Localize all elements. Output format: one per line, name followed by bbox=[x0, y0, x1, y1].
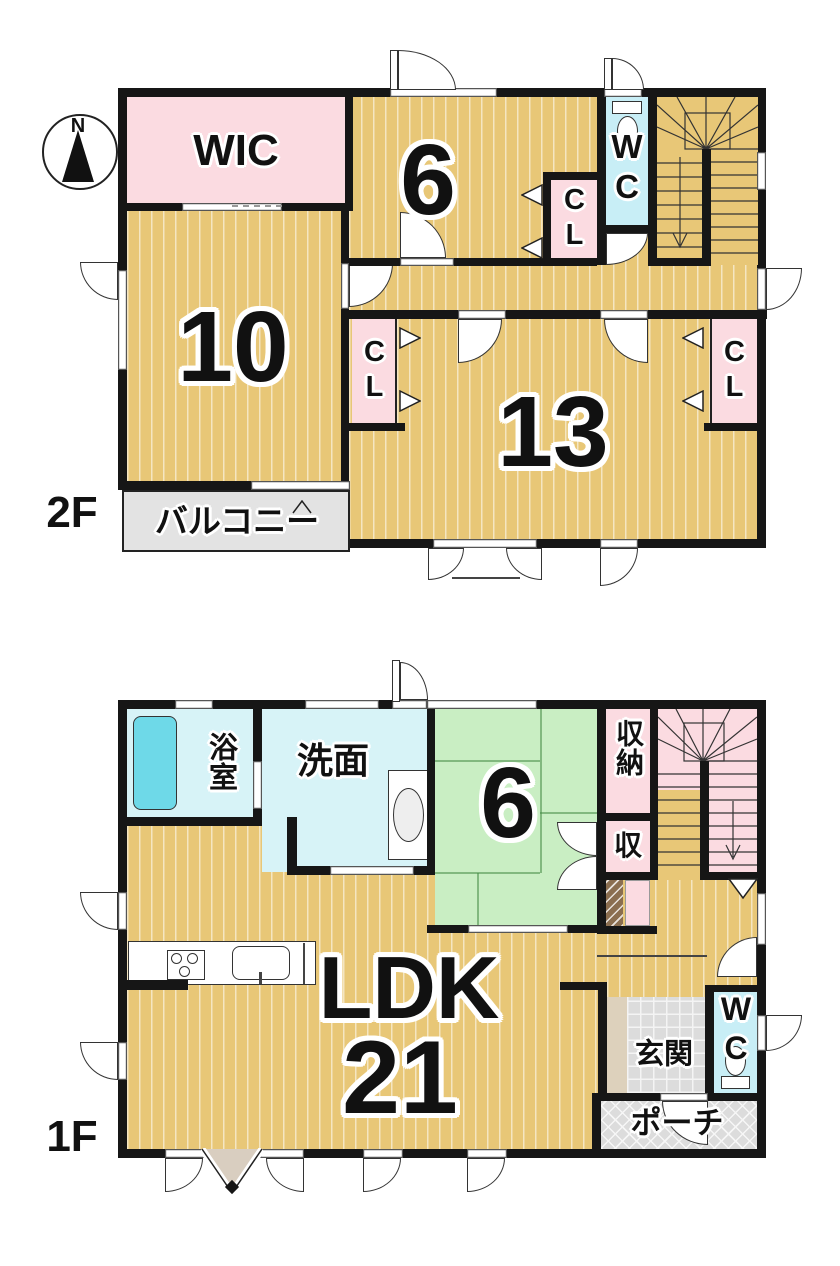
wall bbox=[597, 926, 657, 934]
stove-burner-icon bbox=[187, 953, 198, 964]
room-6-2f-label: 6 bbox=[400, 130, 456, 230]
north-arrow-icon bbox=[62, 130, 94, 182]
window bbox=[305, 700, 379, 709]
room-tatami-6-label: 6 bbox=[480, 753, 536, 853]
wall bbox=[341, 423, 405, 431]
door-arc bbox=[398, 50, 456, 90]
balcony-label: バルコニー bbox=[155, 505, 319, 538]
wall bbox=[543, 172, 551, 262]
wall bbox=[592, 1093, 601, 1157]
sink-bowl-icon bbox=[393, 788, 424, 842]
sliding-door bbox=[251, 481, 350, 490]
window bbox=[757, 152, 766, 190]
wall bbox=[648, 97, 657, 265]
folding-door-icon bbox=[521, 237, 543, 259]
door-arc bbox=[80, 1042, 118, 1080]
room-13-label: 13 bbox=[497, 382, 608, 482]
window bbox=[260, 1149, 304, 1158]
door-arc bbox=[266, 1158, 304, 1192]
storage-strip bbox=[625, 880, 650, 926]
window bbox=[757, 893, 766, 945]
sliding-door bbox=[468, 925, 568, 933]
stove-burner-icon bbox=[171, 953, 182, 964]
storage-shu-label: 収 bbox=[614, 832, 642, 860]
floor-plan: N bbox=[0, 0, 840, 1266]
door-arc bbox=[467, 1158, 505, 1192]
window bbox=[467, 1149, 507, 1158]
door-arc bbox=[165, 1158, 203, 1192]
tatami-line bbox=[540, 812, 597, 814]
wall bbox=[341, 310, 767, 319]
room-wc-1f-label: WC bbox=[720, 991, 752, 1069]
staircase-1f bbox=[658, 709, 757, 880]
wall bbox=[543, 172, 597, 180]
entrance-step bbox=[607, 997, 627, 1093]
closet-front-line bbox=[395, 319, 397, 423]
window bbox=[165, 1149, 205, 1158]
stair-base-notch bbox=[728, 878, 758, 900]
entrance-step-line bbox=[597, 955, 707, 957]
bathtub-icon bbox=[133, 716, 177, 810]
window bbox=[175, 700, 213, 709]
door-arc bbox=[600, 548, 638, 586]
door-opening bbox=[118, 892, 127, 930]
wall bbox=[345, 97, 353, 211]
window bbox=[433, 539, 537, 548]
faucet-icon bbox=[259, 972, 262, 984]
folding-door-icon bbox=[521, 184, 543, 206]
entrance-genkan-label: 玄関 bbox=[635, 1041, 693, 1070]
casement-window-arc bbox=[506, 548, 542, 580]
wall bbox=[648, 258, 711, 266]
storage-shunou-label: 収納 bbox=[614, 719, 642, 777]
tatami-line bbox=[477, 873, 479, 925]
wall bbox=[704, 423, 766, 431]
stove-burner-icon bbox=[179, 966, 190, 977]
window bbox=[427, 700, 537, 709]
sliding-door-track bbox=[232, 205, 282, 207]
wall bbox=[118, 980, 188, 990]
door-leaf bbox=[392, 660, 400, 702]
room-washroom-label: 洗面 bbox=[297, 743, 369, 779]
floor-label-2f: 2F bbox=[46, 491, 97, 535]
porch-label: ポーチ bbox=[631, 1108, 724, 1139]
door-opening bbox=[253, 761, 262, 809]
toilet-tank-icon bbox=[721, 1076, 750, 1089]
room-wic-label: WIC bbox=[193, 129, 279, 173]
door-opening bbox=[757, 1015, 766, 1051]
wall bbox=[560, 982, 607, 990]
door-opening bbox=[600, 539, 638, 548]
folding-door-icon bbox=[399, 327, 421, 349]
shoe-cabinet bbox=[606, 880, 623, 926]
door-opening bbox=[757, 268, 766, 310]
wall bbox=[705, 985, 714, 1100]
room-wc-2f-label: WC bbox=[611, 128, 644, 208]
room-ldk-size-label: 21 bbox=[342, 1026, 458, 1130]
room-bath-label: 浴室 bbox=[206, 732, 235, 792]
wall bbox=[427, 709, 435, 875]
window bbox=[118, 1042, 127, 1080]
corner-bay-window bbox=[201, 1148, 263, 1196]
folding-door-icon bbox=[682, 390, 704, 412]
door-opening bbox=[600, 310, 648, 319]
room-10-label: 10 bbox=[177, 297, 288, 397]
folding-door-icon bbox=[682, 327, 704, 349]
window-sill-line bbox=[452, 577, 520, 579]
wall bbox=[650, 709, 658, 880]
closet-cl-right-label: CL bbox=[720, 336, 749, 406]
toilet-tank-icon bbox=[612, 101, 642, 114]
wall bbox=[349, 258, 597, 266]
door-opening bbox=[400, 258, 454, 266]
door-opening bbox=[341, 263, 349, 309]
folding-door-icon bbox=[399, 390, 421, 412]
sliding-door bbox=[330, 866, 414, 875]
door-arc bbox=[363, 1158, 401, 1192]
tatami-line bbox=[540, 709, 542, 873]
counter-divider-line bbox=[303, 943, 305, 984]
closet-cl-hall-label: CL bbox=[560, 184, 589, 254]
staircase-2f bbox=[657, 97, 758, 265]
door-arc bbox=[80, 892, 118, 930]
door-arc bbox=[80, 262, 118, 300]
room-ldk-label: LDK bbox=[319, 944, 500, 1032]
door-arc bbox=[766, 1015, 802, 1051]
door-arc bbox=[400, 662, 428, 700]
wall bbox=[597, 709, 606, 933]
floor-label-1f: 1F bbox=[46, 1115, 97, 1159]
wall bbox=[597, 97, 606, 265]
door-opening bbox=[660, 1093, 708, 1101]
closet-front-line bbox=[710, 319, 712, 423]
compass-north-label: N bbox=[71, 116, 85, 136]
door-arc bbox=[612, 58, 644, 90]
closet-cl-left-label: CL bbox=[360, 336, 389, 406]
wall bbox=[598, 990, 607, 1097]
window bbox=[363, 1149, 403, 1158]
wall bbox=[341, 203, 349, 490]
door-leaf bbox=[390, 50, 398, 90]
door-arc bbox=[766, 268, 802, 310]
tatami-line bbox=[435, 872, 540, 874]
window bbox=[118, 270, 127, 370]
door-opening bbox=[458, 310, 506, 319]
door-leaf bbox=[604, 58, 612, 90]
casement-window-arc bbox=[428, 548, 464, 580]
